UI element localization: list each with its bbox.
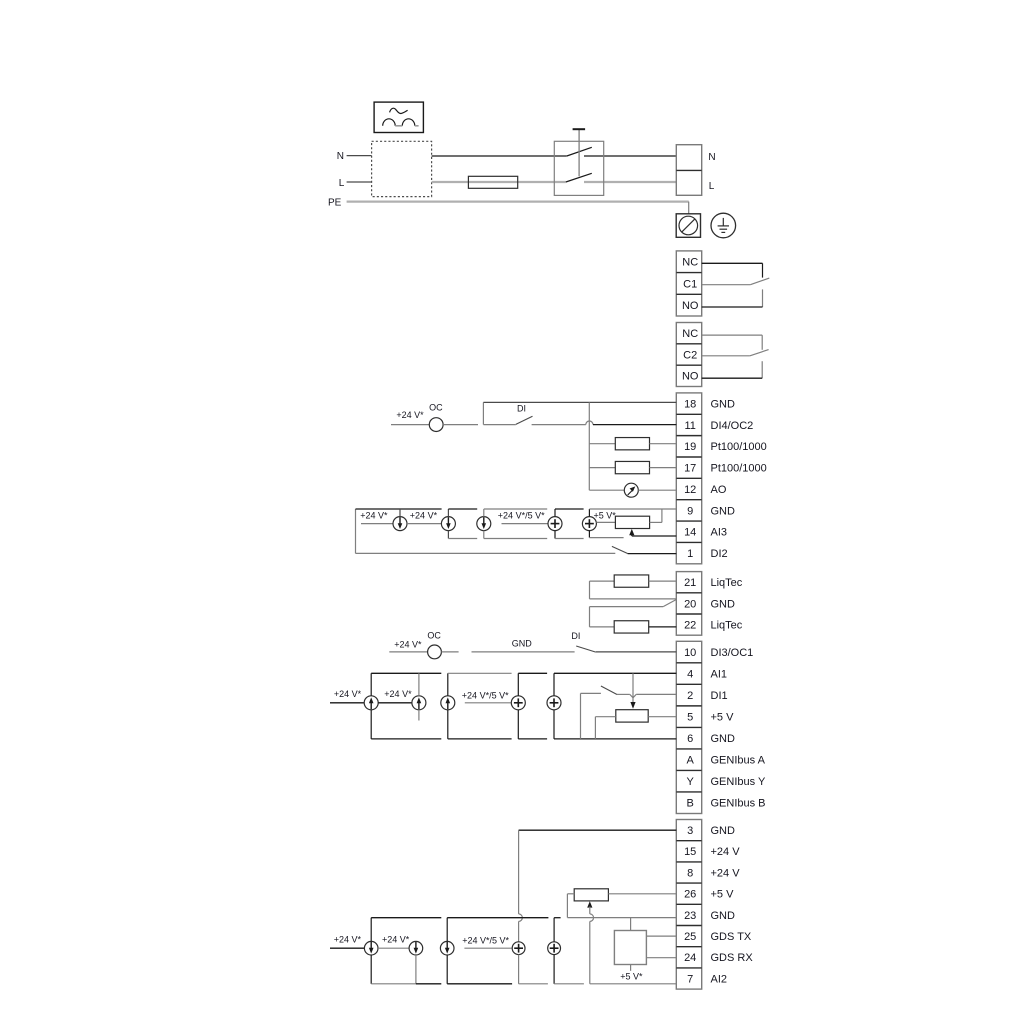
svg-text:DI3/OC1: DI3/OC1 (711, 647, 754, 659)
svg-text:2: 2 (687, 690, 693, 702)
svg-text:GDS RX: GDS RX (711, 952, 754, 964)
svg-text:C2: C2 (683, 349, 697, 361)
svg-text:+24 V*: +24 V* (394, 640, 422, 650)
svg-text:5: 5 (687, 712, 693, 724)
svg-text:GENIbus Y: GENIbus Y (711, 776, 766, 788)
svg-text:+24 V*: +24 V* (334, 935, 362, 945)
svg-text:AO: AO (711, 484, 727, 496)
svg-text:C1: C1 (683, 278, 697, 290)
svg-text:22: 22 (684, 620, 696, 632)
svg-text:+5 V: +5 V (711, 712, 735, 724)
svg-text:26: 26 (684, 889, 696, 901)
svg-text:+5 V*: +5 V* (594, 511, 617, 521)
svg-text:7: 7 (687, 973, 693, 985)
svg-text:NO: NO (682, 300, 699, 312)
svg-text:+24 V*: +24 V* (334, 689, 362, 699)
svg-text:Y: Y (687, 776, 695, 788)
svg-text:18: 18 (684, 398, 696, 410)
svg-text:+24 V*: +24 V* (382, 935, 410, 945)
svg-text:GENIbus B: GENIbus B (711, 798, 766, 810)
svg-text:DI2: DI2 (711, 548, 728, 560)
svg-text:B: B (687, 798, 694, 810)
svg-text:NC: NC (682, 328, 698, 340)
svg-text:20: 20 (684, 598, 696, 610)
svg-text:N: N (708, 152, 715, 163)
svg-text:17: 17 (684, 463, 696, 475)
svg-text:+5 V: +5 V (711, 889, 735, 901)
svg-text:+24 V*/5 V*: +24 V*/5 V* (498, 510, 545, 520)
svg-text:GND: GND (711, 733, 736, 745)
svg-text:9: 9 (687, 505, 693, 517)
svg-text:GND: GND (512, 639, 533, 649)
svg-text:AI3: AI3 (711, 527, 728, 539)
svg-text:+24 V*/5 V*: +24 V*/5 V* (462, 690, 509, 700)
svg-text:LiqTec: LiqTec (711, 620, 743, 632)
svg-text:NC: NC (682, 257, 698, 269)
svg-text:4: 4 (687, 668, 693, 680)
svg-text:3: 3 (687, 825, 693, 837)
svg-text:Pt100/1000: Pt100/1000 (711, 441, 767, 453)
svg-text:N: N (337, 151, 344, 162)
svg-text:23: 23 (684, 910, 696, 922)
svg-text:+24 V*/5 V*: +24 V*/5 V* (462, 936, 509, 946)
svg-text:GND: GND (711, 825, 736, 837)
svg-text:GND: GND (711, 598, 736, 610)
svg-text:DI: DI (571, 631, 580, 641)
svg-text:LiqTec: LiqTec (711, 577, 743, 589)
svg-text:GND: GND (711, 398, 736, 410)
svg-text:1: 1 (687, 548, 693, 560)
svg-text:+24 V: +24 V (711, 846, 741, 858)
svg-text:GDS TX: GDS TX (711, 931, 752, 943)
svg-text:L: L (709, 181, 715, 192)
svg-text:25: 25 (684, 931, 696, 943)
svg-text:OC: OC (427, 630, 441, 640)
svg-text:DI4/OC2: DI4/OC2 (711, 420, 754, 432)
svg-text:NO: NO (682, 371, 699, 383)
svg-text:21: 21 (684, 577, 696, 589)
svg-text:GENIbus A: GENIbus A (711, 755, 766, 767)
svg-text:A: A (687, 755, 695, 767)
svg-text:19: 19 (684, 441, 696, 453)
svg-text:AI2: AI2 (711, 973, 728, 985)
svg-text:+24 V: +24 V (711, 867, 741, 879)
svg-text:8: 8 (687, 867, 693, 879)
svg-text:12: 12 (684, 484, 696, 496)
svg-text:14: 14 (684, 527, 696, 539)
svg-text:OC: OC (429, 402, 443, 412)
svg-text:GND: GND (711, 505, 736, 517)
svg-text:DI: DI (517, 404, 526, 414)
svg-text:L: L (339, 178, 345, 189)
svg-text:10: 10 (684, 647, 696, 659)
svg-text:+24 V*: +24 V* (410, 510, 438, 520)
svg-text:+24 V*: +24 V* (384, 689, 412, 699)
svg-text:PE: PE (328, 197, 342, 208)
svg-text:+5 V*: +5 V* (620, 971, 643, 981)
svg-text:GND: GND (711, 910, 736, 922)
svg-text:Pt100/1000: Pt100/1000 (711, 463, 767, 475)
svg-text:+24 V*: +24 V* (396, 410, 424, 420)
svg-text:11: 11 (684, 420, 695, 432)
svg-text:+24 V*: +24 V* (360, 511, 388, 521)
svg-text:15: 15 (684, 846, 696, 858)
svg-text:24: 24 (684, 952, 696, 964)
svg-text:6: 6 (687, 733, 693, 745)
svg-text:AI1: AI1 (711, 668, 728, 680)
svg-text:DI1: DI1 (711, 690, 728, 702)
